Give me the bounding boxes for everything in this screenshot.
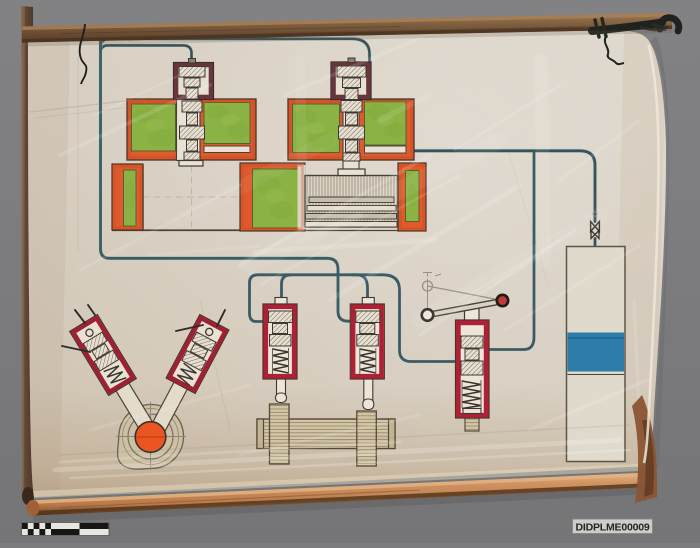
svg-text:DIDPLME00009: DIDPLME00009: [575, 522, 649, 534]
